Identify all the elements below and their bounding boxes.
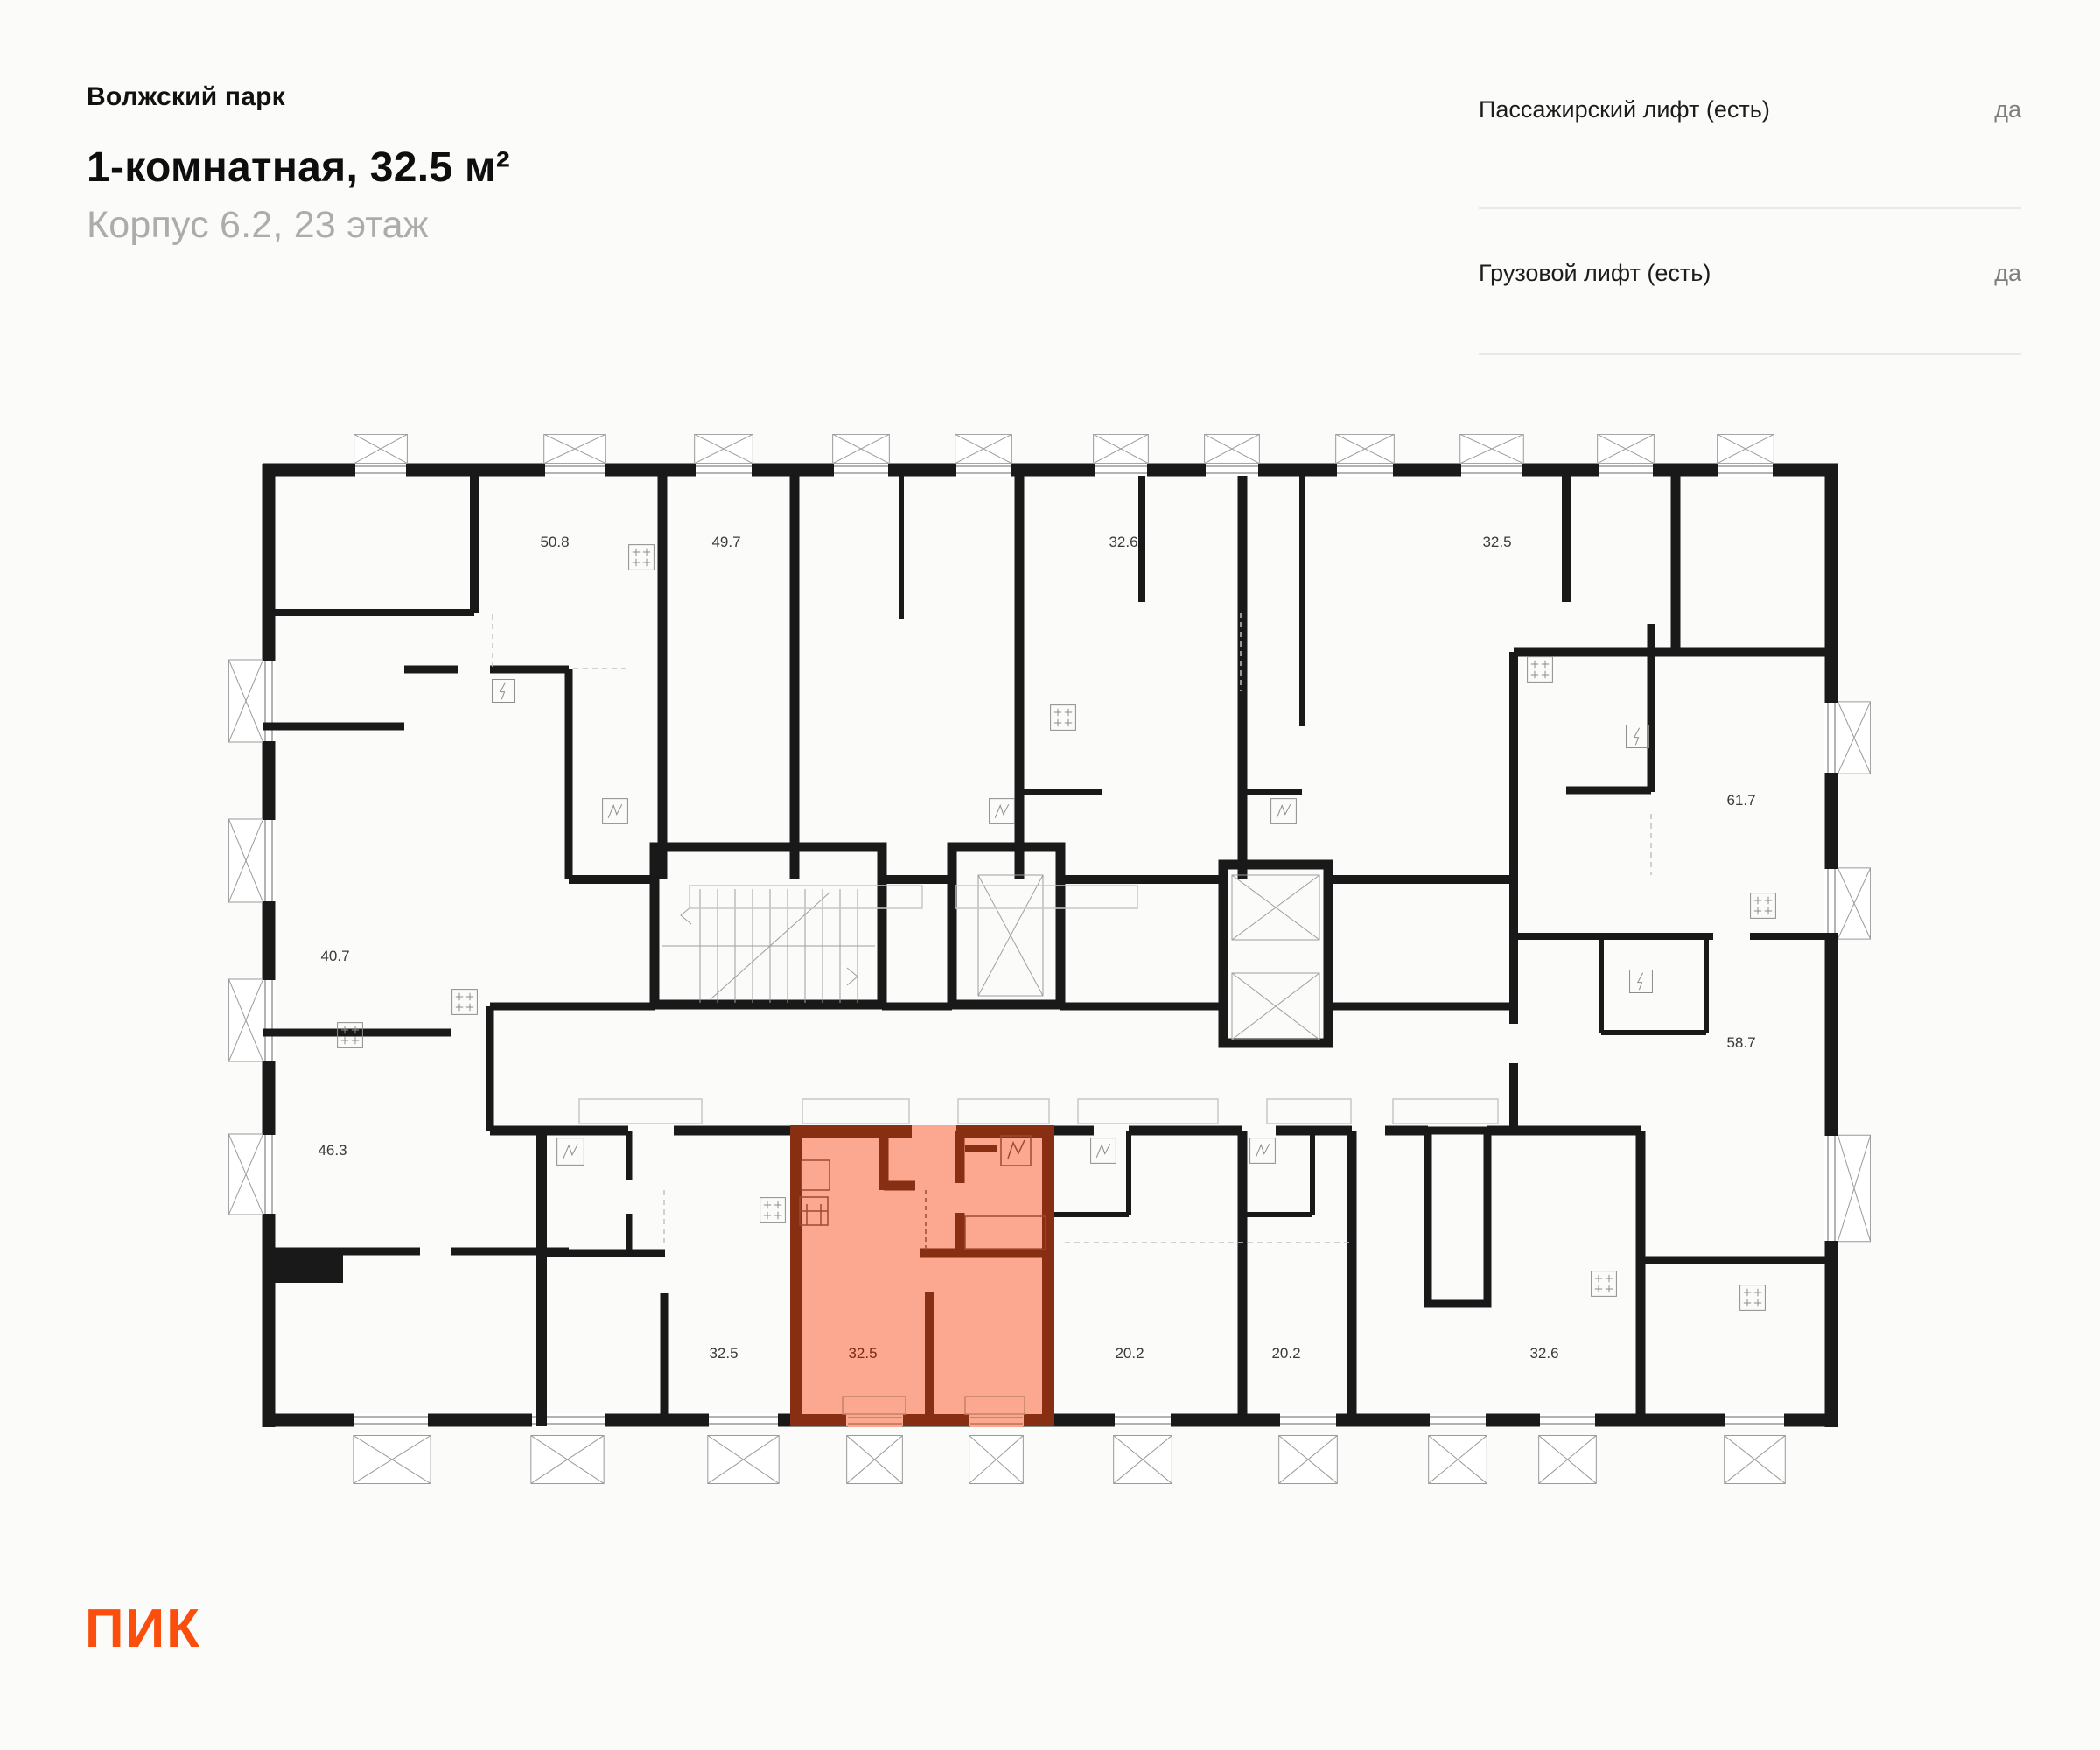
area-label-highlighted: 32.5 — [848, 1345, 877, 1361]
staircase — [654, 847, 882, 1004]
info-value: да — [1994, 96, 2021, 123]
stove-icon — [1528, 657, 1553, 682]
stove-icon — [1740, 1285, 1766, 1311]
washing-machine-icon — [1091, 1138, 1116, 1164]
electric-panel-icon — [1630, 970, 1653, 993]
washing-machine-icon — [1250, 1138, 1276, 1164]
area-label: 32.6 — [1529, 1345, 1558, 1361]
area-label: 32.6 — [1109, 534, 1137, 550]
area-label: 61.7 — [1726, 792, 1755, 808]
electric-panel-icon — [1627, 725, 1649, 748]
area-label: 40.7 — [320, 948, 349, 964]
area-label: 46.3 — [318, 1142, 346, 1158]
stove-icon — [629, 545, 654, 570]
info-panel: Пассажирский лифт (есть) да Грузовой лиф… — [1479, 87, 2021, 355]
area-label: 20.2 — [1271, 1345, 1300, 1361]
pik-logo[interactable]: ПИК — [85, 1598, 201, 1660]
washing-machine-icon — [1271, 799, 1297, 824]
area-label: 49.7 — [711, 534, 740, 550]
area-label: 20.2 — [1115, 1345, 1144, 1361]
washing-machine-icon — [990, 799, 1015, 824]
stove-icon — [1592, 1271, 1617, 1297]
electric-panel-icon — [493, 680, 515, 703]
page-title: 1-комнатная, 32.5 м² — [87, 143, 510, 192]
washing-machine-icon — [557, 1138, 584, 1165]
highlighted-apartment[interactable] — [790, 1125, 1054, 1427]
info-row-passenger-lift: Пассажирский лифт (есть) да — [1479, 87, 2021, 209]
area-label: 32.5 — [1482, 534, 1511, 550]
floor-plan-svg: 50.8 49.7 32.6 32.5 61.7 40.7 46.3 58.7 … — [219, 402, 1881, 1514]
page: { "header": { "project": "Волжский парк"… — [0, 0, 2100, 1750]
stove-icon — [452, 990, 478, 1015]
area-label: 32.5 — [709, 1345, 738, 1361]
stove-icon — [1751, 893, 1776, 919]
project-name: Волжский парк — [87, 82, 510, 112]
stove-icon — [760, 1198, 786, 1223]
stove-icon — [1051, 705, 1076, 731]
washing-machine-icon — [603, 799, 628, 824]
area-label: 50.8 — [540, 534, 569, 550]
info-label: Пассажирский лифт (есть) — [1479, 96, 1770, 123]
info-label: Грузовой лифт (есть) — [1479, 260, 1711, 287]
header: Волжский парк 1-комнатная, 32.5 м² Корпу… — [87, 82, 510, 247]
area-label: 58.7 — [1726, 1034, 1755, 1051]
info-value: да — [1994, 260, 2021, 287]
page-subtitle: Корпус 6.2, 23 этаж — [87, 204, 510, 247]
info-row-cargo-lift: Грузовой лифт (есть) да — [1479, 209, 2021, 355]
